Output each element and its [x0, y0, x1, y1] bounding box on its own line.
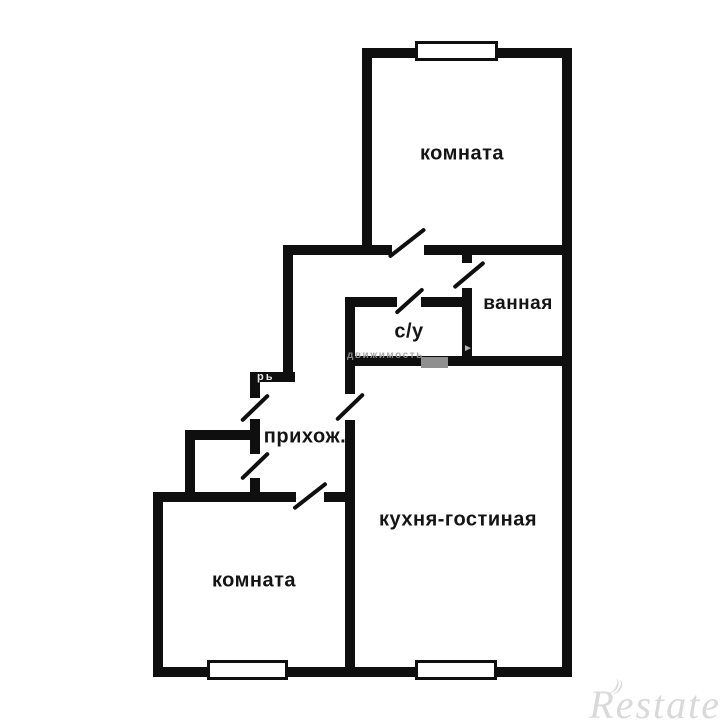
watermark-text-strip: движимость — [347, 350, 424, 361]
door-closet-icon — [240, 451, 270, 480]
window-kitchen — [415, 660, 497, 680]
wall-kitchen-left-2 — [345, 420, 355, 667]
wall-closet-top — [185, 430, 252, 440]
wall-kitchen-left-1 — [345, 297, 355, 394]
wall-bath-left — [462, 288, 472, 366]
wall-bath-left-stub — [462, 255, 472, 263]
watermark-wall-fragment: рь — [257, 371, 274, 383]
room-label-hall: прихож. — [264, 426, 346, 449]
window-top-room — [415, 41, 498, 61]
wall-top-room-left — [362, 48, 372, 255]
room-label-wc: с/у — [394, 321, 423, 344]
floor-plan: комната ванная с/у прихож. кухня-гостина… — [0, 0, 725, 725]
wall-left-room-top-1 — [153, 492, 296, 502]
watermark-logo-text: Restate — [589, 682, 721, 725]
watermark-gray-patch — [421, 357, 448, 368]
door-bathroom-icon — [452, 261, 485, 290]
room-label-bath: ванная — [483, 293, 553, 315]
door-top-room-icon — [388, 227, 427, 258]
watermark-arrow-icon: ► — [463, 343, 473, 354]
window-left-room — [207, 660, 288, 680]
watermark-logo: ))Restate — [589, 685, 721, 725]
door-left-room-icon — [292, 481, 328, 510]
room-label-left: комната — [212, 570, 296, 593]
wall-mid-horizontal-b — [424, 245, 572, 255]
door-kitchen-icon — [335, 392, 365, 421]
room-label-kitchen: кухня-гостиная — [379, 509, 537, 532]
wall-hall-upper-left — [283, 245, 293, 382]
room-label-top: комната — [420, 143, 504, 166]
wall-wc-top-1 — [345, 297, 397, 307]
wall-left-room-left — [153, 492, 163, 677]
wall-mid-horizontal-a — [283, 245, 392, 255]
